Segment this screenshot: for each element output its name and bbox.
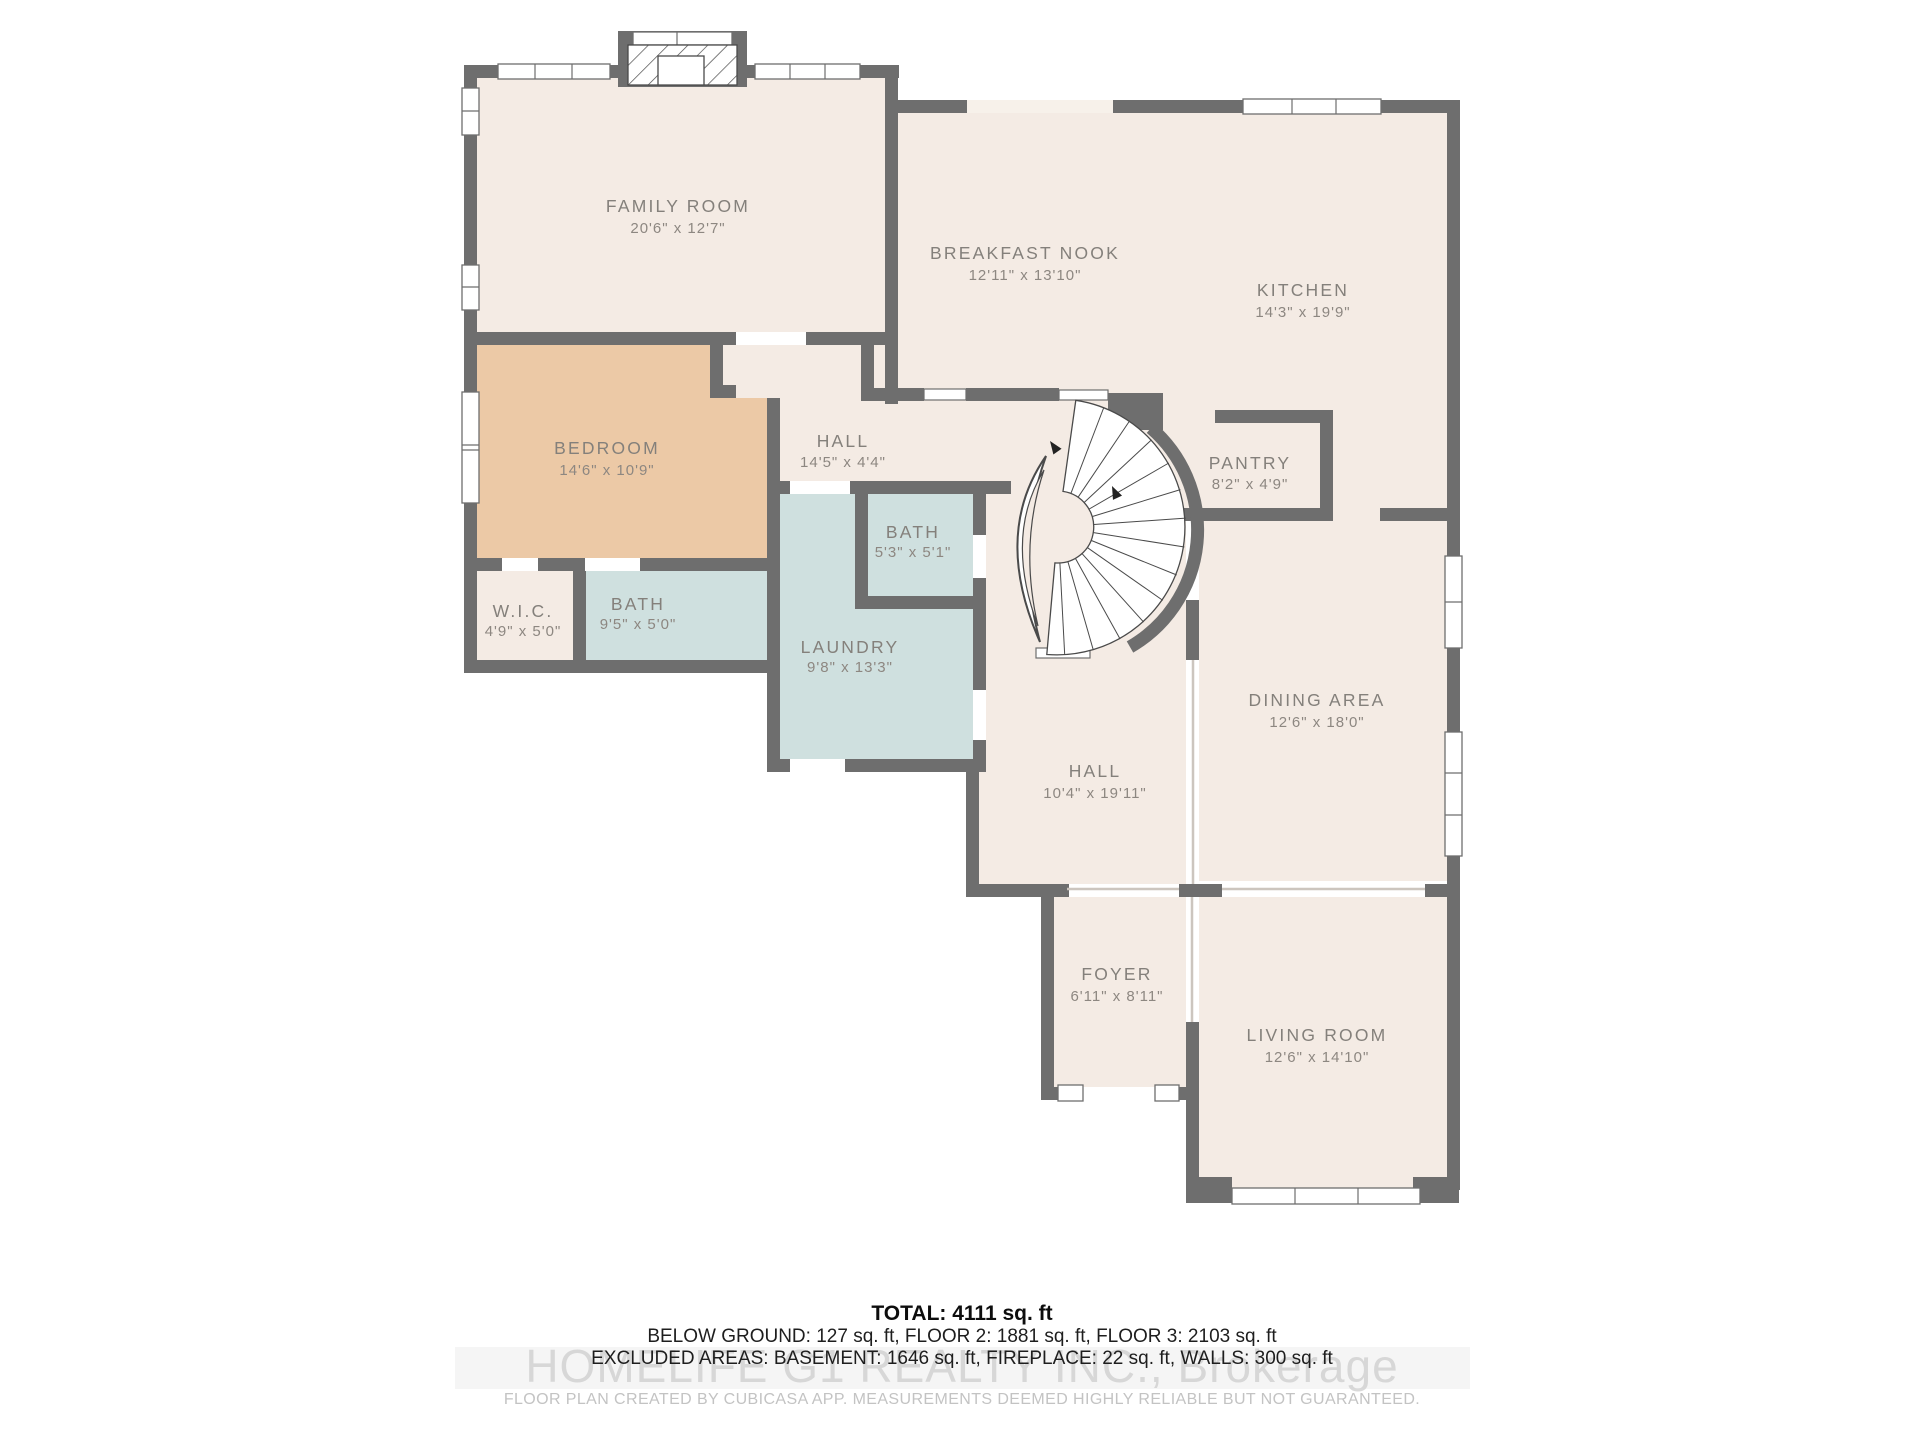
floor-plan-page: FAMILY ROOM 20'6" x 12'7" BREAKFAST NOOK…: [0, 0, 1920, 1440]
stair-threshold: [1059, 390, 1108, 400]
room-dims: 9'8" x 13'3": [807, 659, 893, 676]
wall: [973, 578, 986, 690]
wall: [1186, 600, 1199, 660]
wall: [767, 759, 790, 772]
window: [1445, 732, 1462, 856]
wall: [1320, 410, 1333, 521]
room-dims: 12'11" x 13'10": [969, 267, 1082, 284]
wall: [861, 388, 924, 401]
wall: [767, 398, 780, 772]
wall: [640, 558, 780, 571]
wall: [464, 660, 780, 673]
wall: [806, 332, 898, 345]
window: [1058, 1085, 1083, 1101]
vestibule-floor: [723, 345, 885, 394]
wall: [1186, 1022, 1199, 1190]
room-name: KITCHEN: [1257, 280, 1349, 300]
wall: [1113, 100, 1243, 113]
wall: [855, 494, 868, 609]
wall: [885, 65, 898, 404]
floors-area-text: BELOW GROUND: 127 sq. ft, FLOOR 2: 1881 …: [647, 1326, 1277, 1347]
window: [1243, 99, 1381, 114]
excluded-area-text: EXCLUDED AREAS: BASEMENT: 1646 sq. ft, F…: [591, 1348, 1333, 1369]
room-name: LAUNDRY: [801, 637, 900, 657]
disclaimer-text: FLOOR PLAN CREATED BY CUBICASA APP. MEAS…: [504, 1391, 1420, 1408]
laundry-floor: [780, 494, 973, 759]
wall: [1179, 884, 1222, 897]
wall: [973, 481, 986, 535]
room-dims: 4'9" x 5'0": [485, 623, 562, 640]
wall: [1215, 410, 1320, 423]
room-dims: 12'6" x 18'0": [1269, 714, 1364, 731]
wall: [710, 385, 736, 398]
wall: [538, 558, 585, 571]
wall: [966, 388, 1028, 401]
room-dims: 14'3" x 19'9": [1255, 304, 1350, 321]
room-dims: 5'3" x 5'1": [875, 544, 952, 561]
room-name: BATH: [611, 594, 665, 614]
room-dims: 14'6" x 10'9": [559, 462, 654, 479]
room-label-laundry: LAUNDRY 9'8" x 13'3": [801, 637, 900, 676]
wall: [1041, 1087, 1060, 1100]
window: [462, 392, 479, 503]
wall: [845, 759, 986, 772]
floor-plan: FAMILY ROOM 20'6" x 12'7" BREAKFAST NOOK…: [0, 0, 1920, 1440]
wall: [1186, 1177, 1232, 1203]
room-name: FOYER: [1081, 964, 1152, 984]
room-dims: 10'4" x 19'11": [1043, 785, 1147, 802]
wall: [850, 481, 1011, 494]
wall: [1425, 884, 1447, 897]
room-name: FAMILY ROOM: [606, 196, 750, 216]
window: [1232, 1188, 1420, 1204]
window: [633, 32, 732, 45]
wall: [966, 772, 979, 897]
wall: [767, 481, 790, 494]
wall: [573, 571, 586, 660]
fireplace-firebox: [658, 56, 704, 85]
door-threshold: [924, 389, 966, 400]
room-label-wic: W.I.C. 4'9" x 5'0": [485, 601, 562, 640]
room-label-bath-small: BATH 5'3" x 5'1": [875, 522, 952, 561]
room-name: LIVING ROOM: [1247, 1025, 1388, 1045]
room-label-bath: BATH 9'5" x 5'0": [600, 594, 677, 633]
wall: [1028, 388, 1059, 401]
wall: [1380, 508, 1447, 521]
wall-opening: [967, 100, 1113, 113]
window: [498, 64, 610, 79]
fireplace: [628, 45, 737, 85]
room-dims: 20'6" x 12'7": [630, 220, 725, 237]
wall: [861, 345, 874, 394]
room-name: HALL: [1069, 761, 1122, 781]
room-dims: 12'6" x 14'10": [1265, 1049, 1370, 1066]
room-name: BEDROOM: [554, 438, 660, 458]
wall: [464, 65, 477, 673]
room-name: HALL: [817, 431, 870, 451]
room-dims: 9'5" x 5'0": [600, 616, 677, 633]
wall: [898, 100, 967, 113]
wall: [1041, 884, 1054, 1100]
room-name: W.I.C.: [493, 601, 554, 621]
room-name: DINING AREA: [1248, 690, 1385, 710]
door-gap: [1325, 508, 1380, 521]
window: [1155, 1085, 1179, 1101]
wall: [855, 596, 986, 609]
room-dims: 14'5" x 4'4": [800, 454, 886, 471]
room-dims: 8'2" x 4'9": [1212, 476, 1289, 493]
room-name: PANTRY: [1209, 453, 1292, 473]
room-dims: 6'11" x 8'11": [1070, 988, 1163, 1005]
wall: [464, 332, 736, 345]
room-name: BREAKFAST NOOK: [930, 243, 1120, 263]
window: [755, 64, 860, 79]
total-area-text: TOTAL: 4111 sq. ft: [871, 1302, 1052, 1325]
footer: HOMELIFE G1 REALTY INC., Brokerage TOTAL…: [455, 1302, 1470, 1408]
room-name: BATH: [886, 522, 940, 542]
wall: [464, 558, 502, 571]
wall: [1381, 100, 1449, 113]
